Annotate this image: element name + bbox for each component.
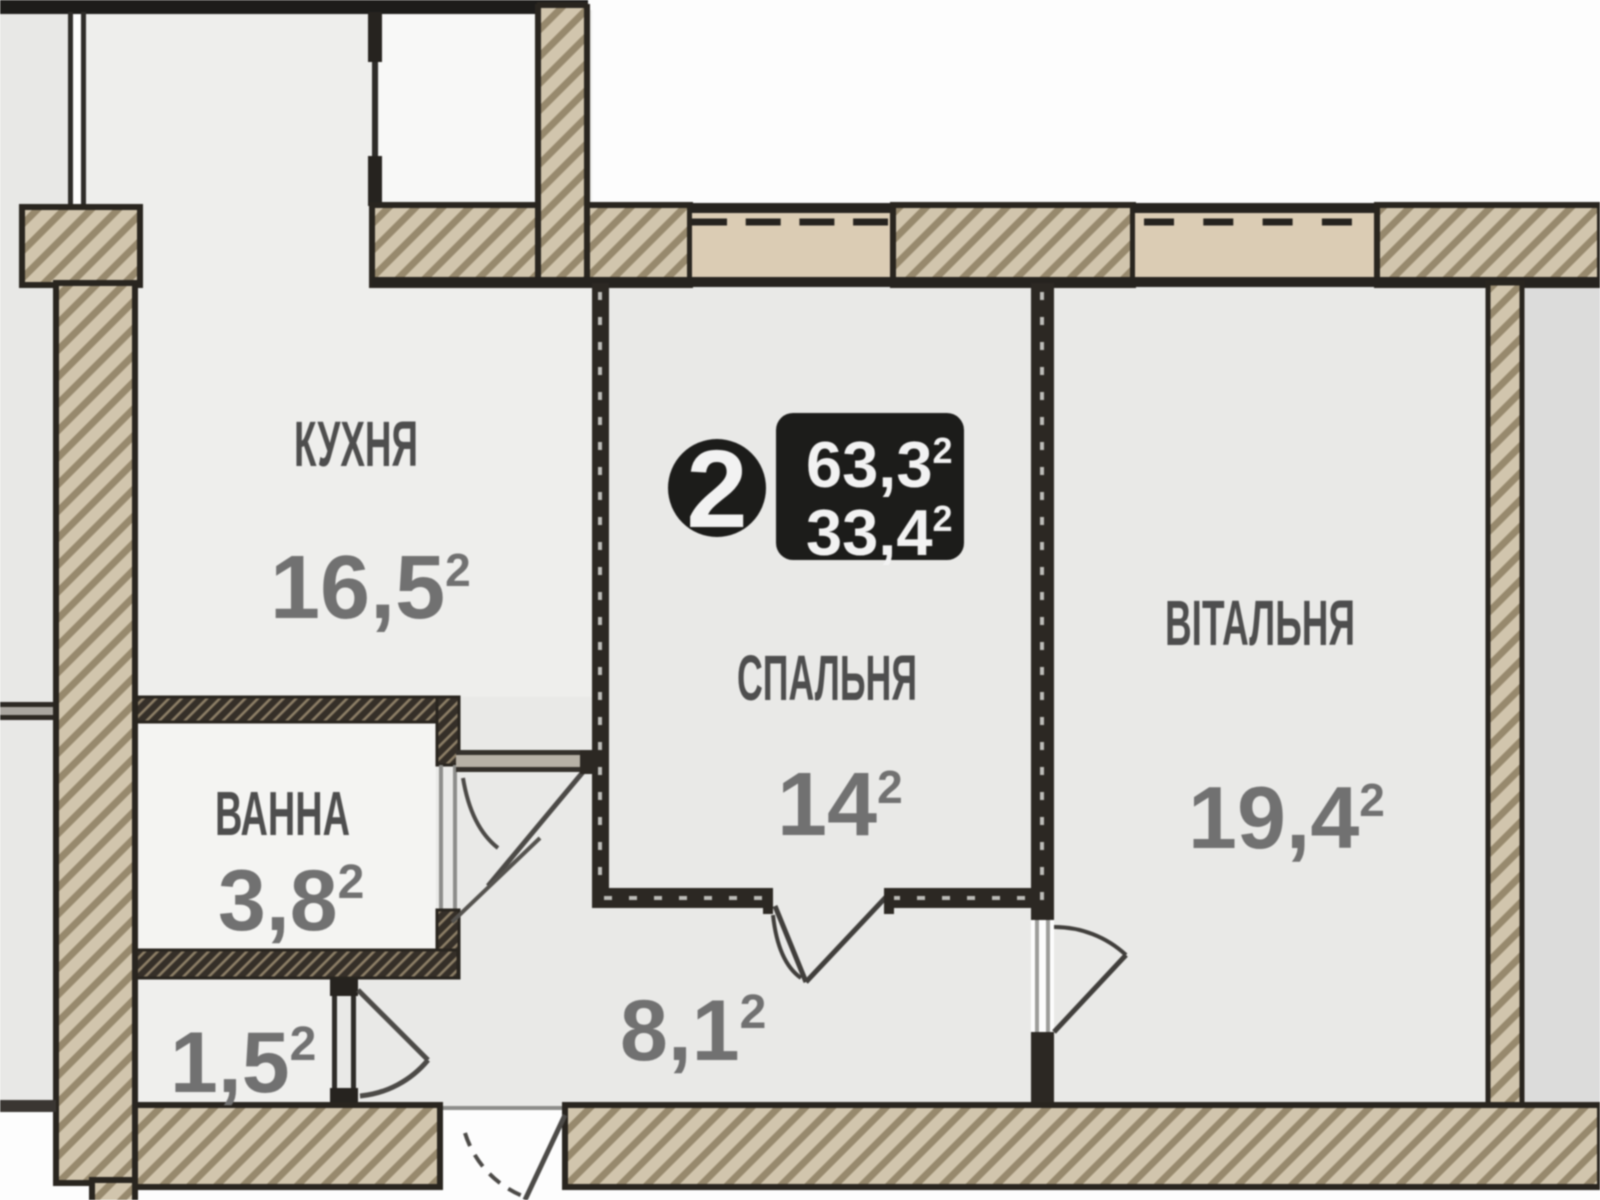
svg-text:КУХНЯ: КУХНЯ <box>294 408 418 480</box>
svg-text:63,32: 63,32 <box>806 428 953 501</box>
svg-text:33,42: 33,42 <box>806 496 953 569</box>
svg-text:ВІТАЛЬНЯ: ВІТАЛЬНЯ <box>1165 587 1355 659</box>
svg-text:ВАННА: ВАННА <box>215 780 350 849</box>
svg-text:16,52: 16,52 <box>270 538 471 638</box>
svg-text:СПАЛЬНЯ: СПАЛЬНЯ <box>737 642 917 714</box>
svg-text:19,42: 19,42 <box>1188 768 1385 867</box>
svg-text:2: 2 <box>686 428 747 551</box>
